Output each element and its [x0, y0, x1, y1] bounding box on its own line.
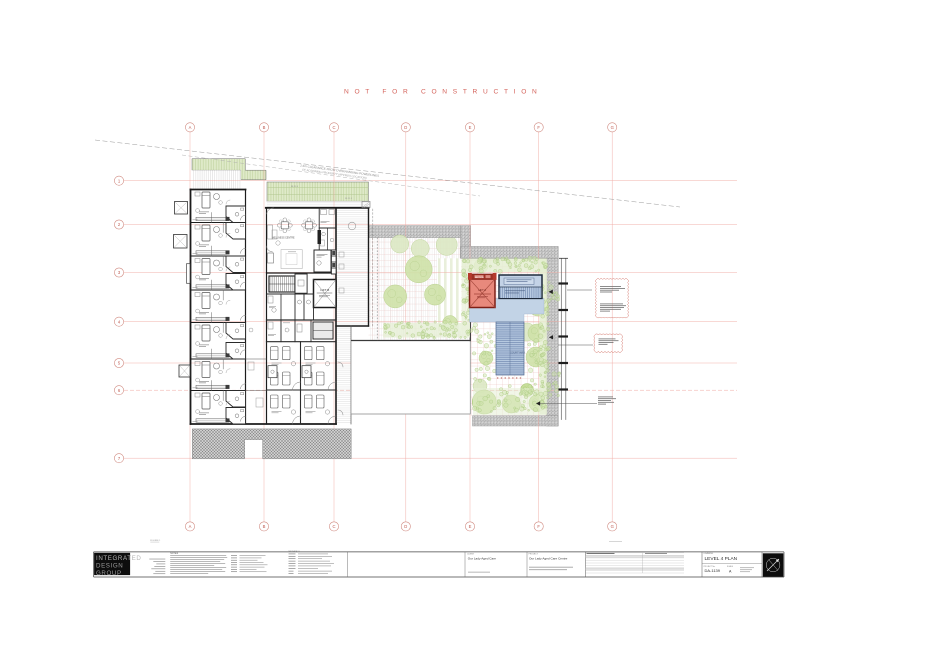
svg-text:B: B [263, 524, 266, 529]
svg-text:Our Lady Aged Care: Our Lady Aged Care [468, 557, 496, 561]
svg-text:RL 21.5: RL 21.5 [291, 186, 299, 188]
svg-text:COURTYARD: COURTYARD [510, 352, 525, 355]
svg-text:A: A [189, 524, 192, 529]
svg-text:LIFT A: LIFT A [478, 288, 486, 292]
svg-text:CLIENT: CLIENT [467, 554, 475, 556]
svg-text:D: D [404, 524, 407, 529]
svg-text:LEVEL 4 PLAN: LEVEL 4 PLAN [705, 556, 738, 562]
svg-text:RL 21.5: RL 21.5 [345, 198, 353, 200]
svg-text:FIGURE 1: FIGURE 1 [150, 540, 161, 542]
svg-text:A: A [189, 125, 192, 130]
svg-text:DA-1139: DA-1139 [705, 568, 721, 573]
svg-text:F: F [537, 524, 540, 529]
svg-text:G: G [611, 125, 614, 130]
svg-text:DRAWING: DRAWING [704, 552, 714, 555]
svg-text:E: E [469, 524, 472, 529]
svg-text:DESIGN: DESIGN [96, 563, 123, 570]
svg-text:MATERIALS: MATERIALS [289, 550, 301, 553]
svg-text:G: G [611, 524, 614, 529]
svg-text:E: E [469, 125, 472, 130]
svg-text:F: F [537, 125, 540, 130]
svg-text:GROUP: GROUP [96, 570, 122, 577]
svg-text:C: C [332, 125, 335, 130]
svg-text:LIFT B: LIFT B [320, 288, 329, 292]
svg-text:NOT FOR CONSTRUCTION: NOT FOR CONSTRUCTION [344, 88, 543, 95]
svg-text:Our Lady Aged Care Centre: Our Lady Aged Care Centre [529, 557, 568, 561]
svg-text:INTEGRATED: INTEGRATED [96, 555, 141, 562]
svg-text:SCALE: SCALE [727, 565, 734, 568]
svg-text:D: D [404, 125, 407, 130]
svg-text:SECTION: SECTION [475, 277, 484, 279]
svg-text:NOTES: NOTES [170, 553, 178, 555]
svg-text:PROJECT: PROJECT [529, 554, 539, 556]
svg-text:B: B [263, 125, 266, 130]
svg-text:C: C [332, 524, 335, 529]
